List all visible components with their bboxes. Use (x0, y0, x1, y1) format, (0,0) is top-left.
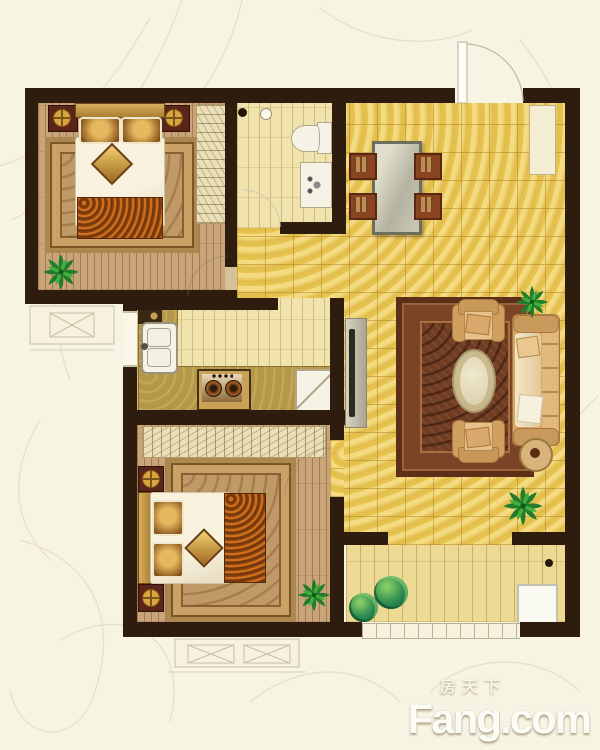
wall-kitchen-bottom (123, 410, 345, 425)
table-lamp-icon (165, 109, 183, 127)
armchair (452, 299, 503, 343)
oval-coffee-table (452, 349, 496, 413)
wall-top-left (25, 88, 455, 103)
second-bed (138, 492, 266, 582)
table-lamp-icon (142, 470, 160, 488)
dining-chair (349, 153, 377, 180)
armchair-pillow (465, 314, 491, 336)
tv-icon (349, 329, 355, 417)
refrigerator (295, 369, 334, 413)
bed-blanket (77, 197, 163, 239)
chair-seat (419, 197, 433, 212)
tv-stand (345, 318, 367, 428)
table-lamp-icon (53, 109, 71, 127)
faucet-icon (141, 343, 148, 350)
floor-plan-canvas: 房天下 Fang.com (0, 0, 600, 750)
bed-pillow (152, 542, 184, 578)
sofa-armrest (513, 315, 559, 333)
wall-balcony-stub-left (344, 532, 388, 545)
sink-basin (147, 348, 171, 367)
balcony-window-band (362, 623, 520, 639)
armchair-pillow (465, 427, 491, 449)
side-table (519, 438, 553, 472)
wash-basin-vanity (300, 162, 332, 208)
balcony-plant (374, 576, 408, 609)
wall-bathroom-dining (332, 103, 346, 234)
bed-headboard (75, 103, 165, 118)
balcony-plant (349, 593, 378, 622)
chair-seat (419, 157, 433, 172)
wall-right (565, 88, 580, 637)
watermark: 房天下 Fang.com (408, 680, 590, 740)
nightstand (138, 584, 164, 612)
floor-drain-icon (238, 108, 247, 117)
wall-kitchen-left-upper (123, 298, 137, 312)
stove-knobs (211, 374, 233, 378)
burner-icon (225, 380, 242, 397)
shower-point-icon (260, 108, 272, 120)
cup-icon (530, 448, 540, 458)
floor-drain-icon (545, 559, 553, 567)
nightstand (48, 105, 78, 132)
bed-pillow (121, 117, 162, 144)
chair-seat (354, 197, 368, 212)
master-wardrobe (196, 104, 227, 224)
wall-left-lower (123, 366, 137, 637)
table-lamp-icon (142, 589, 160, 607)
bed-pillow (79, 117, 121, 144)
washing-machine (517, 584, 558, 626)
dining-chair (414, 153, 442, 180)
wall-bedroom2-bottom (123, 622, 345, 637)
watermark-chinese: 房天下 (382, 680, 564, 696)
shoe-cabinet (529, 105, 556, 175)
watermark-logo: Fang.com (408, 698, 590, 740)
wall-balcony-bottom-right (520, 622, 580, 637)
armchair (452, 419, 503, 463)
wall-left (25, 88, 38, 304)
sofa-throw (517, 394, 544, 424)
wall-balcony-stub-right (512, 532, 565, 545)
sink-basin (147, 328, 171, 347)
sofa-back-cushions (542, 317, 558, 441)
bed-blanket (224, 493, 266, 583)
sofa-pillow (516, 336, 541, 359)
chair-seat (354, 157, 368, 172)
toilet-bowl (291, 125, 320, 152)
dining-chair (349, 193, 377, 220)
wall-kitchen-top (123, 298, 278, 310)
master-bed (75, 103, 163, 237)
second-wardrobe (142, 426, 326, 458)
wall-balcony-bottom-left (345, 622, 362, 637)
bed-pillow (152, 500, 184, 536)
gas-stove (197, 369, 251, 411)
wall-kitchen-living (330, 298, 344, 440)
kitchen-double-sink (141, 322, 178, 374)
nightstand (138, 466, 164, 492)
kitchen-window (123, 311, 137, 367)
wall-bedroom1-bathroom (225, 103, 237, 267)
wall-bedroom2-right (330, 497, 344, 637)
dining-chair (414, 193, 442, 220)
bedroom2-door-opening (330, 440, 344, 497)
three-seat-sofa (512, 314, 560, 446)
burner-icon (205, 380, 222, 397)
